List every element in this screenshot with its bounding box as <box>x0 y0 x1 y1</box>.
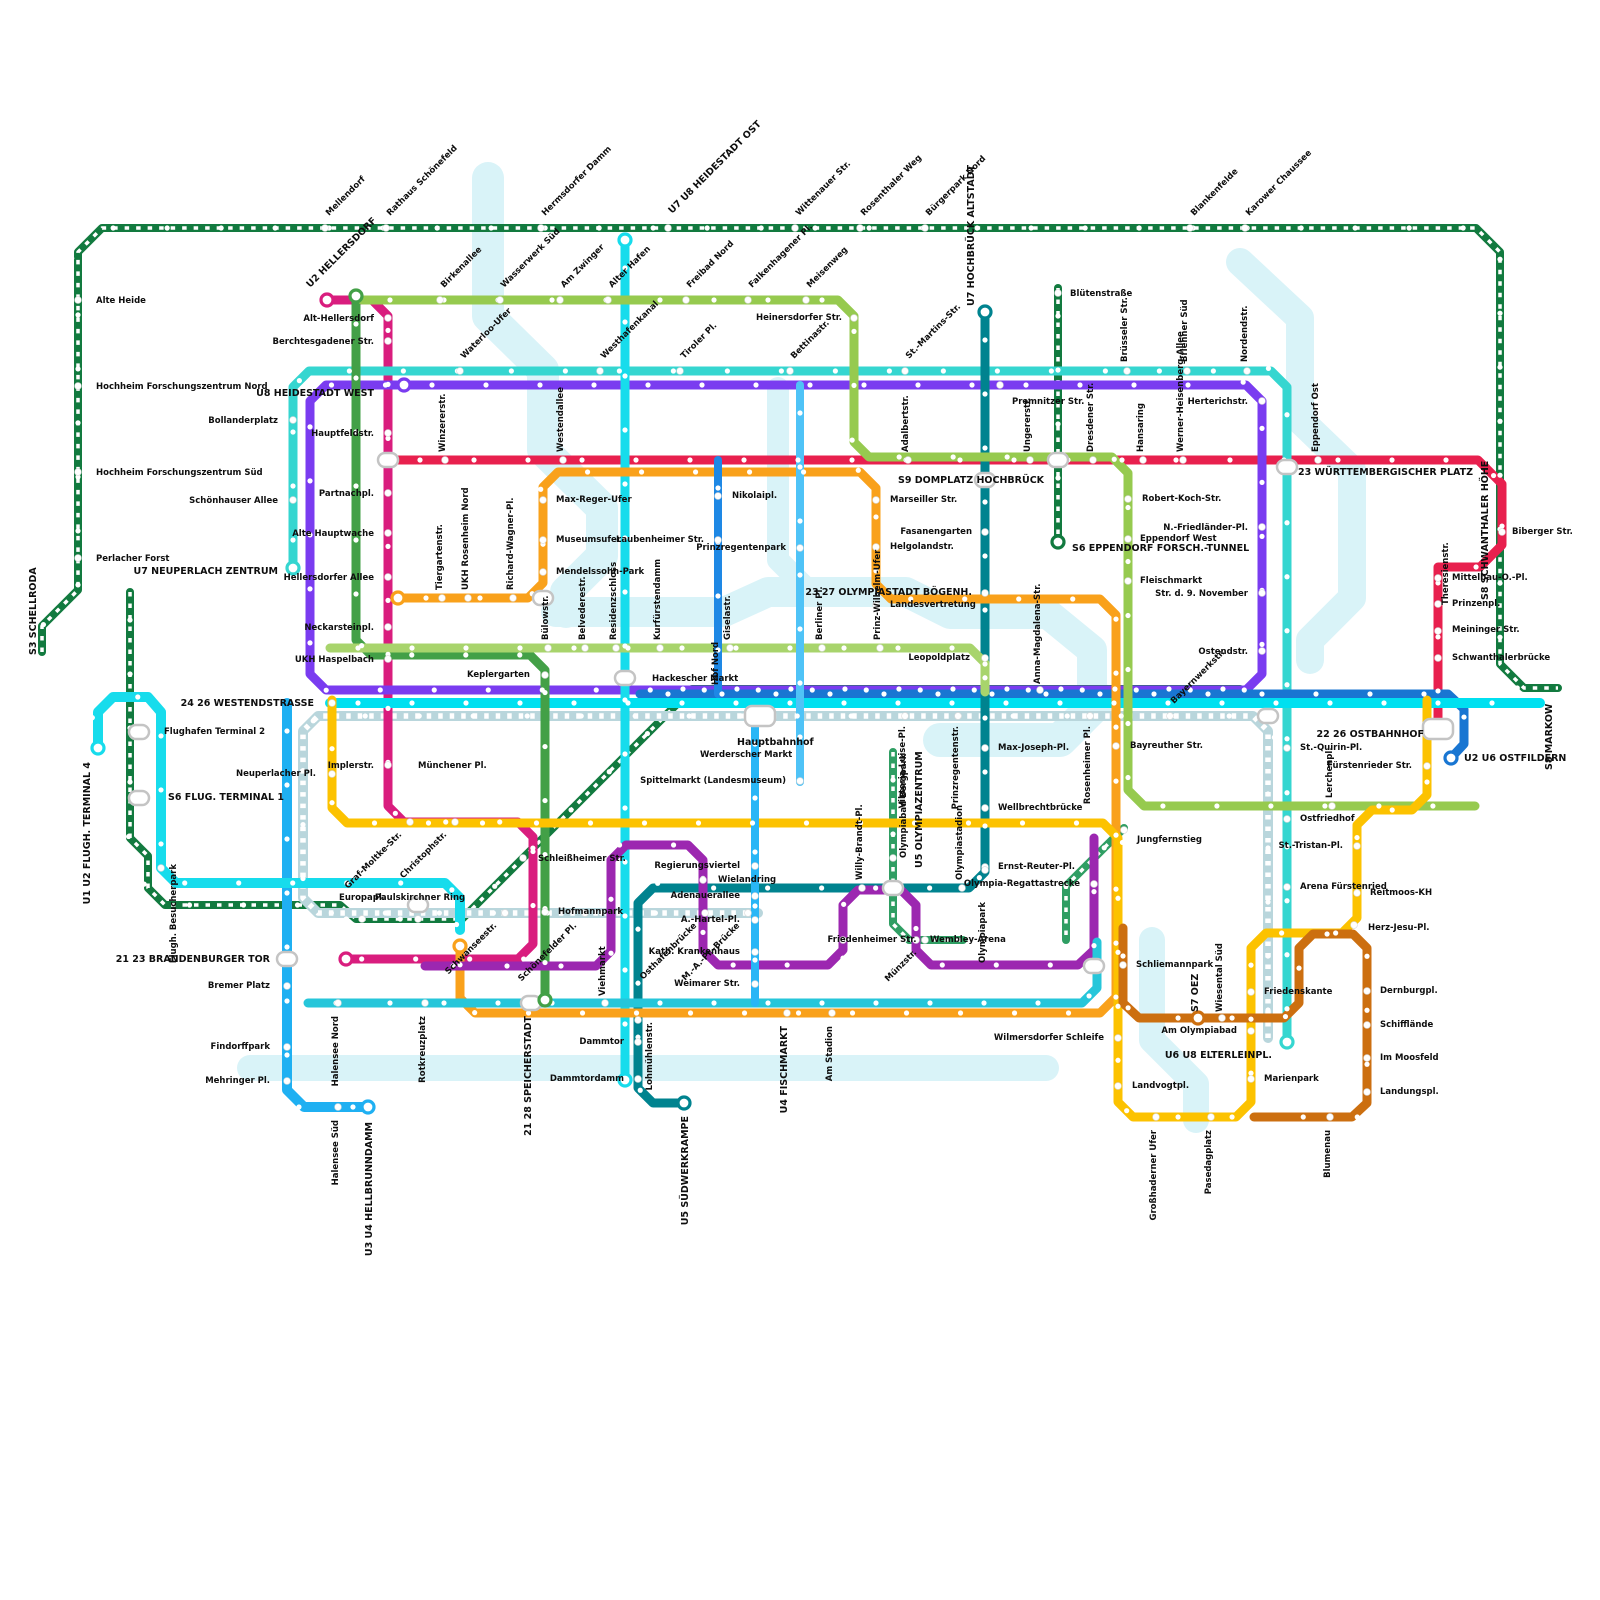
station-dot <box>1227 713 1232 718</box>
station-dot <box>635 981 640 986</box>
station-dot <box>982 867 989 874</box>
station-dot <box>1497 473 1502 478</box>
station-dot <box>41 622 46 627</box>
transit-map-page: Alte HeideHochheim Forschungszentrum Nor… <box>0 0 1600 1600</box>
station-label: Bürgerpark Nord <box>924 154 988 218</box>
station-dot <box>350 1104 355 1109</box>
station-label: Landvogtpl. <box>1132 1081 1189 1091</box>
station-label: Tiroler Pl. <box>679 321 719 361</box>
station-dot <box>1381 700 1386 705</box>
station-dot <box>841 645 846 650</box>
transit-map: Alte HeideHochheim Forschungszentrum Nor… <box>0 0 1600 1600</box>
station-dot <box>1037 687 1044 694</box>
station-label: Berchtesgadener Str. <box>273 337 374 347</box>
station-dot <box>1208 1114 1215 1121</box>
station-label: Mendelssohn-Park <box>556 567 645 577</box>
terminal-label: 23 WÜRTTEMBERGISCHER PLATZ <box>1298 467 1473 478</box>
station-dot <box>1284 1006 1289 1011</box>
station-label: N.-Friedländer-Pl. <box>1163 523 1248 533</box>
station-dot <box>1153 1114 1160 1121</box>
station-dot <box>972 687 977 692</box>
station-dot <box>687 457 692 462</box>
station-dot <box>385 315 392 322</box>
station-dot <box>1125 536 1132 543</box>
station-dot <box>1220 686 1225 691</box>
station-dot <box>1435 628 1442 635</box>
station-dot <box>517 700 522 705</box>
station-dot <box>1497 635 1502 640</box>
station-label: Laubenheimer Str. <box>616 535 704 545</box>
station-label: Meisenweg <box>805 245 850 290</box>
station-dot <box>329 910 334 915</box>
station-dot <box>597 225 602 230</box>
station-dot <box>1329 803 1336 810</box>
station-dot <box>417 457 422 462</box>
station-dot <box>711 885 716 890</box>
station-dot <box>558 963 563 968</box>
station-dot <box>1012 1010 1017 1015</box>
station-dot <box>563 368 568 373</box>
station-dot <box>409 700 414 705</box>
station-dot <box>617 842 622 847</box>
station-dot <box>1016 596 1021 601</box>
station-dot <box>957 457 962 462</box>
station-dot <box>1043 691 1048 696</box>
station-dot <box>622 1021 627 1026</box>
station-dot <box>797 545 804 552</box>
station-dot <box>745 910 752 917</box>
station-label: Schliemannpark <box>1136 960 1214 970</box>
station-dot <box>819 885 824 890</box>
station-label: Jungfernstieg <box>1136 835 1202 845</box>
station-dot <box>290 497 297 504</box>
station-label: Hackescher Markt <box>652 674 738 684</box>
station-dot <box>1166 686 1171 691</box>
station-dot <box>849 713 854 718</box>
station-dot <box>982 655 989 662</box>
line-terminal <box>398 379 410 391</box>
station-label: Flughafen Terminal 2 <box>164 727 265 737</box>
station-dot <box>158 865 165 872</box>
station-label: Prinzregentenstr. <box>951 726 961 809</box>
station-dot <box>622 805 627 810</box>
station-dot <box>1124 1108 1129 1113</box>
station-dot <box>785 962 790 967</box>
station-dot <box>1219 700 1224 705</box>
station-label: Paulskirchner Ring <box>375 893 465 903</box>
station-dot <box>385 328 390 333</box>
station-label: Prinzregentenpark <box>696 543 786 553</box>
station-dot <box>1497 311 1502 316</box>
station-label: Wellbrechtbrücke <box>998 803 1083 813</box>
station-dot <box>1229 1114 1234 1119</box>
station-dot <box>1284 952 1289 957</box>
station-dot <box>307 640 312 645</box>
station-dot <box>435 225 440 230</box>
station-label: Mehringer Pl. <box>205 1076 270 1086</box>
station-dot <box>1273 700 1278 705</box>
station-dot <box>1473 564 1478 569</box>
station-dot <box>1055 475 1060 480</box>
station-dot <box>538 225 545 232</box>
interchange-marker <box>1277 460 1297 474</box>
line-terminal <box>1445 752 1457 764</box>
station-dot <box>633 457 638 462</box>
station-dot <box>1180 457 1187 464</box>
station-label: Viehmarkt <box>598 946 608 996</box>
station-label: Herz-Jesu-Pl. <box>1368 923 1429 933</box>
station-dot <box>1151 691 1156 696</box>
station-dot <box>1353 225 1358 230</box>
station-dot <box>1115 1035 1122 1042</box>
station-label: Giselastr. <box>723 595 733 640</box>
station-label: Neuperlacher Pl. <box>236 769 316 779</box>
station-dot <box>517 645 522 650</box>
station-dot <box>699 382 704 387</box>
station-dot <box>625 645 630 650</box>
station-dot <box>927 885 932 890</box>
station-dot <box>982 745 989 752</box>
line-terminal <box>340 953 352 965</box>
station-dot <box>1259 524 1266 531</box>
station-dot <box>982 769 987 774</box>
station-dot <box>1125 505 1130 510</box>
station-label: Marseiller Str. <box>890 495 957 505</box>
station-dot <box>90 715 95 720</box>
station-dot <box>542 690 547 695</box>
station-label: Rosenthaler Weg <box>859 153 924 218</box>
station-label: Fleischmarkt <box>1140 576 1202 586</box>
terminal-label: 21 23 BRANDENBURGER TOR <box>116 954 271 965</box>
station-dot <box>1115 1083 1122 1090</box>
station-dot <box>300 876 305 881</box>
station-dot <box>1011 713 1016 718</box>
line-terminal <box>1192 1012 1204 1024</box>
station-dot <box>1435 655 1442 662</box>
interchange-marker <box>1258 709 1278 723</box>
station-dot <box>1097 691 1102 696</box>
station-dot <box>398 916 403 921</box>
station-dot <box>1259 648 1266 655</box>
line-terminal <box>92 742 104 754</box>
station-dot <box>792 225 799 232</box>
station-dot <box>787 645 792 650</box>
station-label: Westendallee <box>556 387 566 452</box>
station-dot <box>803 297 810 304</box>
station-dot <box>1113 779 1118 784</box>
station-dot <box>982 661 987 666</box>
station-label: Rosenheimer Pl. <box>1083 726 1093 804</box>
station-dot <box>635 1076 642 1083</box>
station-dot <box>1248 1028 1255 1035</box>
station-dot <box>284 728 289 733</box>
station-dot <box>969 382 974 387</box>
station-dot <box>653 910 658 915</box>
station-dot <box>982 391 987 396</box>
station-dot <box>284 836 289 841</box>
station-label: Großhaderner Ufer <box>1149 1129 1159 1220</box>
station-dot <box>385 762 392 769</box>
station-dot <box>657 1000 662 1005</box>
station-dot <box>651 225 656 230</box>
station-dot <box>1259 398 1266 405</box>
station-dot <box>1077 382 1082 387</box>
station-dot <box>1125 613 1130 618</box>
station-dot <box>605 297 612 304</box>
station-dot <box>1376 803 1381 808</box>
station-dot <box>542 744 547 749</box>
station-dot <box>949 700 954 705</box>
station-dot <box>715 493 722 500</box>
station-dot <box>765 1000 770 1005</box>
station-dot <box>492 884 497 889</box>
station-dot <box>788 686 793 691</box>
station-label: Bülowstr. <box>541 596 551 640</box>
station-dot <box>1074 820 1079 825</box>
station-dot <box>1175 1015 1180 1020</box>
station-dot <box>359 956 364 961</box>
station-dot <box>457 368 464 375</box>
station-dot <box>1115 896 1120 901</box>
station-dot <box>378 687 383 692</box>
station-dot <box>765 297 770 302</box>
terminal-label: U4 FISCHMARKT <box>779 1025 790 1113</box>
station-dot <box>1248 989 1255 996</box>
station-dot <box>1119 457 1124 462</box>
station-dot <box>827 691 832 696</box>
station-dot <box>622 373 627 378</box>
station-dot <box>745 297 752 304</box>
station-label: Ernst-Reuter-Pl. <box>998 862 1075 872</box>
station-dot <box>517 652 522 657</box>
station-dot <box>497 819 502 824</box>
station-dot <box>1113 617 1118 622</box>
station-dot <box>677 368 684 375</box>
station-dot <box>705 225 710 230</box>
station-dot <box>679 700 684 705</box>
station-dot <box>859 885 866 892</box>
station-label: Wielandring <box>718 875 776 885</box>
station-label: Olympiapark <box>978 902 988 963</box>
station-dot <box>779 368 784 373</box>
station-dot <box>594 687 599 692</box>
station-dot <box>622 427 627 432</box>
station-label: Hofmannpark <box>558 907 623 917</box>
station-dot <box>290 429 295 434</box>
station-dot <box>549 297 554 302</box>
station-dot <box>1435 634 1440 639</box>
station-dot <box>1272 735 1277 740</box>
station-dot <box>752 957 757 962</box>
station-dot <box>741 457 746 462</box>
station-dot <box>1284 790 1289 795</box>
station-dot <box>1259 691 1264 696</box>
station-dot <box>765 885 770 890</box>
station-dot <box>752 795 757 800</box>
station-dot <box>355 645 360 650</box>
station-dot <box>617 368 622 373</box>
station-dot <box>335 1000 342 1007</box>
station-dot <box>902 368 909 375</box>
station-dot <box>607 769 612 774</box>
station-label: Olympiabad Bergpark <box>899 753 909 858</box>
station-dot <box>1327 1114 1334 1121</box>
station-dot <box>1126 1005 1131 1010</box>
station-dot <box>580 1010 585 1015</box>
station-dot <box>1335 457 1340 462</box>
station-dot <box>557 297 564 304</box>
station-label: Friedenheimer Str. <box>828 935 917 945</box>
station-dot <box>958 1010 963 1015</box>
station-label: Wasserwerk Süd <box>499 227 562 290</box>
station-dot <box>383 910 388 915</box>
station-dot <box>437 297 444 304</box>
station-dot <box>495 1000 500 1005</box>
station-label: Am Zwinger <box>559 242 607 290</box>
station-dot <box>851 315 858 322</box>
station-dot <box>633 713 638 718</box>
station-dot <box>520 855 527 862</box>
station-label: Hermsdorfer Damm <box>540 144 614 218</box>
station-label: Schifflände <box>1380 1020 1433 1030</box>
station-dot <box>982 675 987 680</box>
station-dot <box>1102 845 1107 850</box>
line-terminal <box>678 1097 690 1109</box>
station-dot <box>1279 930 1284 935</box>
station-dot <box>949 645 954 650</box>
line-terminal <box>362 1101 374 1113</box>
station-dot <box>715 485 720 490</box>
station-label: Alte Heide <box>96 296 146 306</box>
station-dot <box>725 368 730 373</box>
station-dot <box>385 490 392 497</box>
station-dot <box>1035 1000 1040 1005</box>
station-dot <box>1219 1015 1226 1022</box>
station-label: Ostfriedhof <box>1300 814 1355 824</box>
station-dot <box>1284 816 1291 823</box>
station-dot <box>734 686 739 691</box>
station-dot <box>982 337 987 342</box>
station-dot <box>797 572 802 577</box>
station-dot <box>819 645 826 652</box>
station-dot <box>1115 1004 1120 1009</box>
station-dot <box>1065 713 1070 718</box>
station-dot <box>385 706 390 711</box>
station-dot <box>284 1044 291 1051</box>
station-dot <box>75 582 80 587</box>
station-dot <box>75 297 82 304</box>
station-dot <box>904 1010 909 1015</box>
station-dot <box>545 645 552 652</box>
station-label: Marienpark <box>1264 1074 1319 1084</box>
station-dot <box>165 225 170 230</box>
station-dot <box>385 574 392 581</box>
station-dot <box>797 410 802 415</box>
station-dot <box>542 909 549 916</box>
station-dot <box>407 819 414 826</box>
station-dot <box>441 1000 446 1005</box>
station-label: Kurfürstendamm <box>653 559 663 640</box>
station-label: UKH Rosenheim Nord <box>461 487 471 590</box>
station-label: Bayreuther Str. <box>1130 741 1203 751</box>
station-dot <box>1489 700 1494 705</box>
station-dot <box>1515 685 1520 690</box>
station-dot <box>219 225 224 230</box>
station-label: Wiesental Süd <box>1215 943 1225 1012</box>
station-dot <box>895 645 900 650</box>
station-label: Wembley-Arena <box>930 935 1006 945</box>
station-dot <box>913 926 918 931</box>
station-dot <box>236 880 241 885</box>
station-label: Wittenauer Str. <box>794 159 853 218</box>
station-dot <box>502 910 509 917</box>
station-label: Halensee Süd <box>331 1120 341 1185</box>
station-label: Blumenau <box>1323 1130 1333 1178</box>
station-dot <box>443 819 448 824</box>
station-dot <box>1259 642 1264 647</box>
station-dot <box>158 733 163 738</box>
station-dot <box>1185 382 1190 387</box>
station-dot <box>711 297 716 302</box>
station-label: Museumsufer <box>556 535 622 545</box>
station-dot <box>423 595 428 600</box>
station-dot <box>273 225 278 230</box>
terminal-label: 22 26 OSTBAHNHOF <box>1317 729 1424 740</box>
station-label: Perlacher Forst <box>96 554 169 564</box>
station-label: Landesvertretung <box>890 600 976 610</box>
station-dot <box>1259 534 1264 539</box>
station-label: St.-Martins-Str. <box>904 302 963 361</box>
station-dot <box>463 700 468 705</box>
station-dot <box>1268 803 1273 808</box>
station-dot <box>1160 803 1165 808</box>
station-dot <box>1259 426 1264 431</box>
station-dot <box>635 927 640 932</box>
station-dot <box>873 514 878 519</box>
station-dot <box>111 225 116 230</box>
station-dot <box>1265 953 1270 958</box>
station-dot <box>622 319 627 324</box>
station-label: Westhafenkanal <box>599 299 661 361</box>
station-label: Landungspl. <box>1380 1087 1439 1097</box>
station-dot <box>471 457 476 462</box>
station-dot <box>1115 950 1120 955</box>
station-dot <box>1003 700 1008 705</box>
interchange-marker <box>1423 719 1453 739</box>
station-dot <box>1424 763 1431 770</box>
station-label: Schwanthalerbrücke <box>1452 653 1550 663</box>
terminal-label: U7 U8 HEIDESTADT OST <box>666 118 764 216</box>
station-label: Hochheim Forschungszentrum Nord <box>96 382 268 392</box>
station-label: Reitmoos-KH <box>1370 888 1432 898</box>
station-dot <box>989 691 994 696</box>
terminal-label: U8 HEIDESTADT WEST <box>256 388 374 399</box>
station-dot <box>1057 700 1062 705</box>
station-dot <box>840 955 845 960</box>
station-dot <box>1214 803 1219 808</box>
station-dot <box>1020 820 1025 825</box>
station-dot <box>297 378 302 383</box>
station-dot <box>1313 691 1318 696</box>
station-dot <box>417 713 422 718</box>
station-dot <box>639 469 644 474</box>
station-label: Dernburgpl. <box>1380 986 1438 996</box>
station-label: Hauptfeldstr. <box>311 429 374 439</box>
station-label: Willy-Brandt-Pl. <box>855 804 865 880</box>
station-dot <box>542 798 547 803</box>
station-dot <box>1364 1008 1369 1013</box>
station-dot <box>797 680 802 685</box>
